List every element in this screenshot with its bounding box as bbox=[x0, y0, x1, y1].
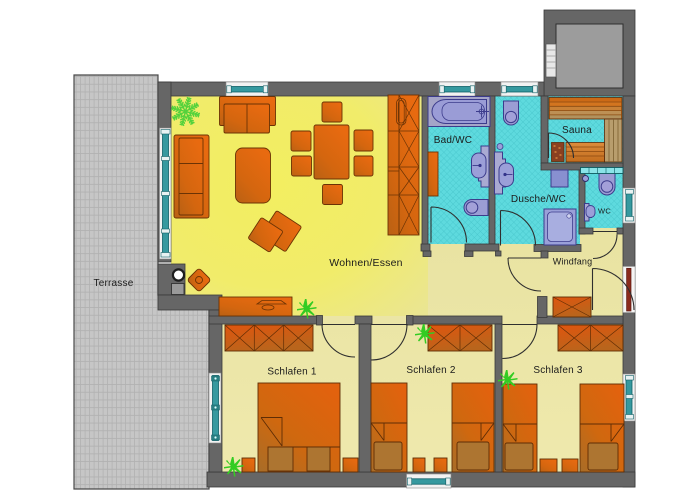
svg-text:Wohnen/Essen: Wohnen/Essen bbox=[329, 257, 402, 269]
svg-text:Terrasse: Terrasse bbox=[94, 278, 134, 289]
svg-text:Windfang: Windfang bbox=[553, 257, 593, 267]
svg-text:Schlafen 1: Schlafen 1 bbox=[267, 367, 316, 378]
svg-text:WC: WC bbox=[598, 207, 611, 216]
svg-text:Dusche/WC: Dusche/WC bbox=[511, 194, 566, 205]
svg-text:Sauna: Sauna bbox=[562, 125, 592, 136]
svg-text:Schlafen 2: Schlafen 2 bbox=[406, 365, 455, 376]
svg-text:Bad/WC: Bad/WC bbox=[434, 135, 472, 146]
svg-text:Schlafen 3: Schlafen 3 bbox=[533, 365, 582, 376]
